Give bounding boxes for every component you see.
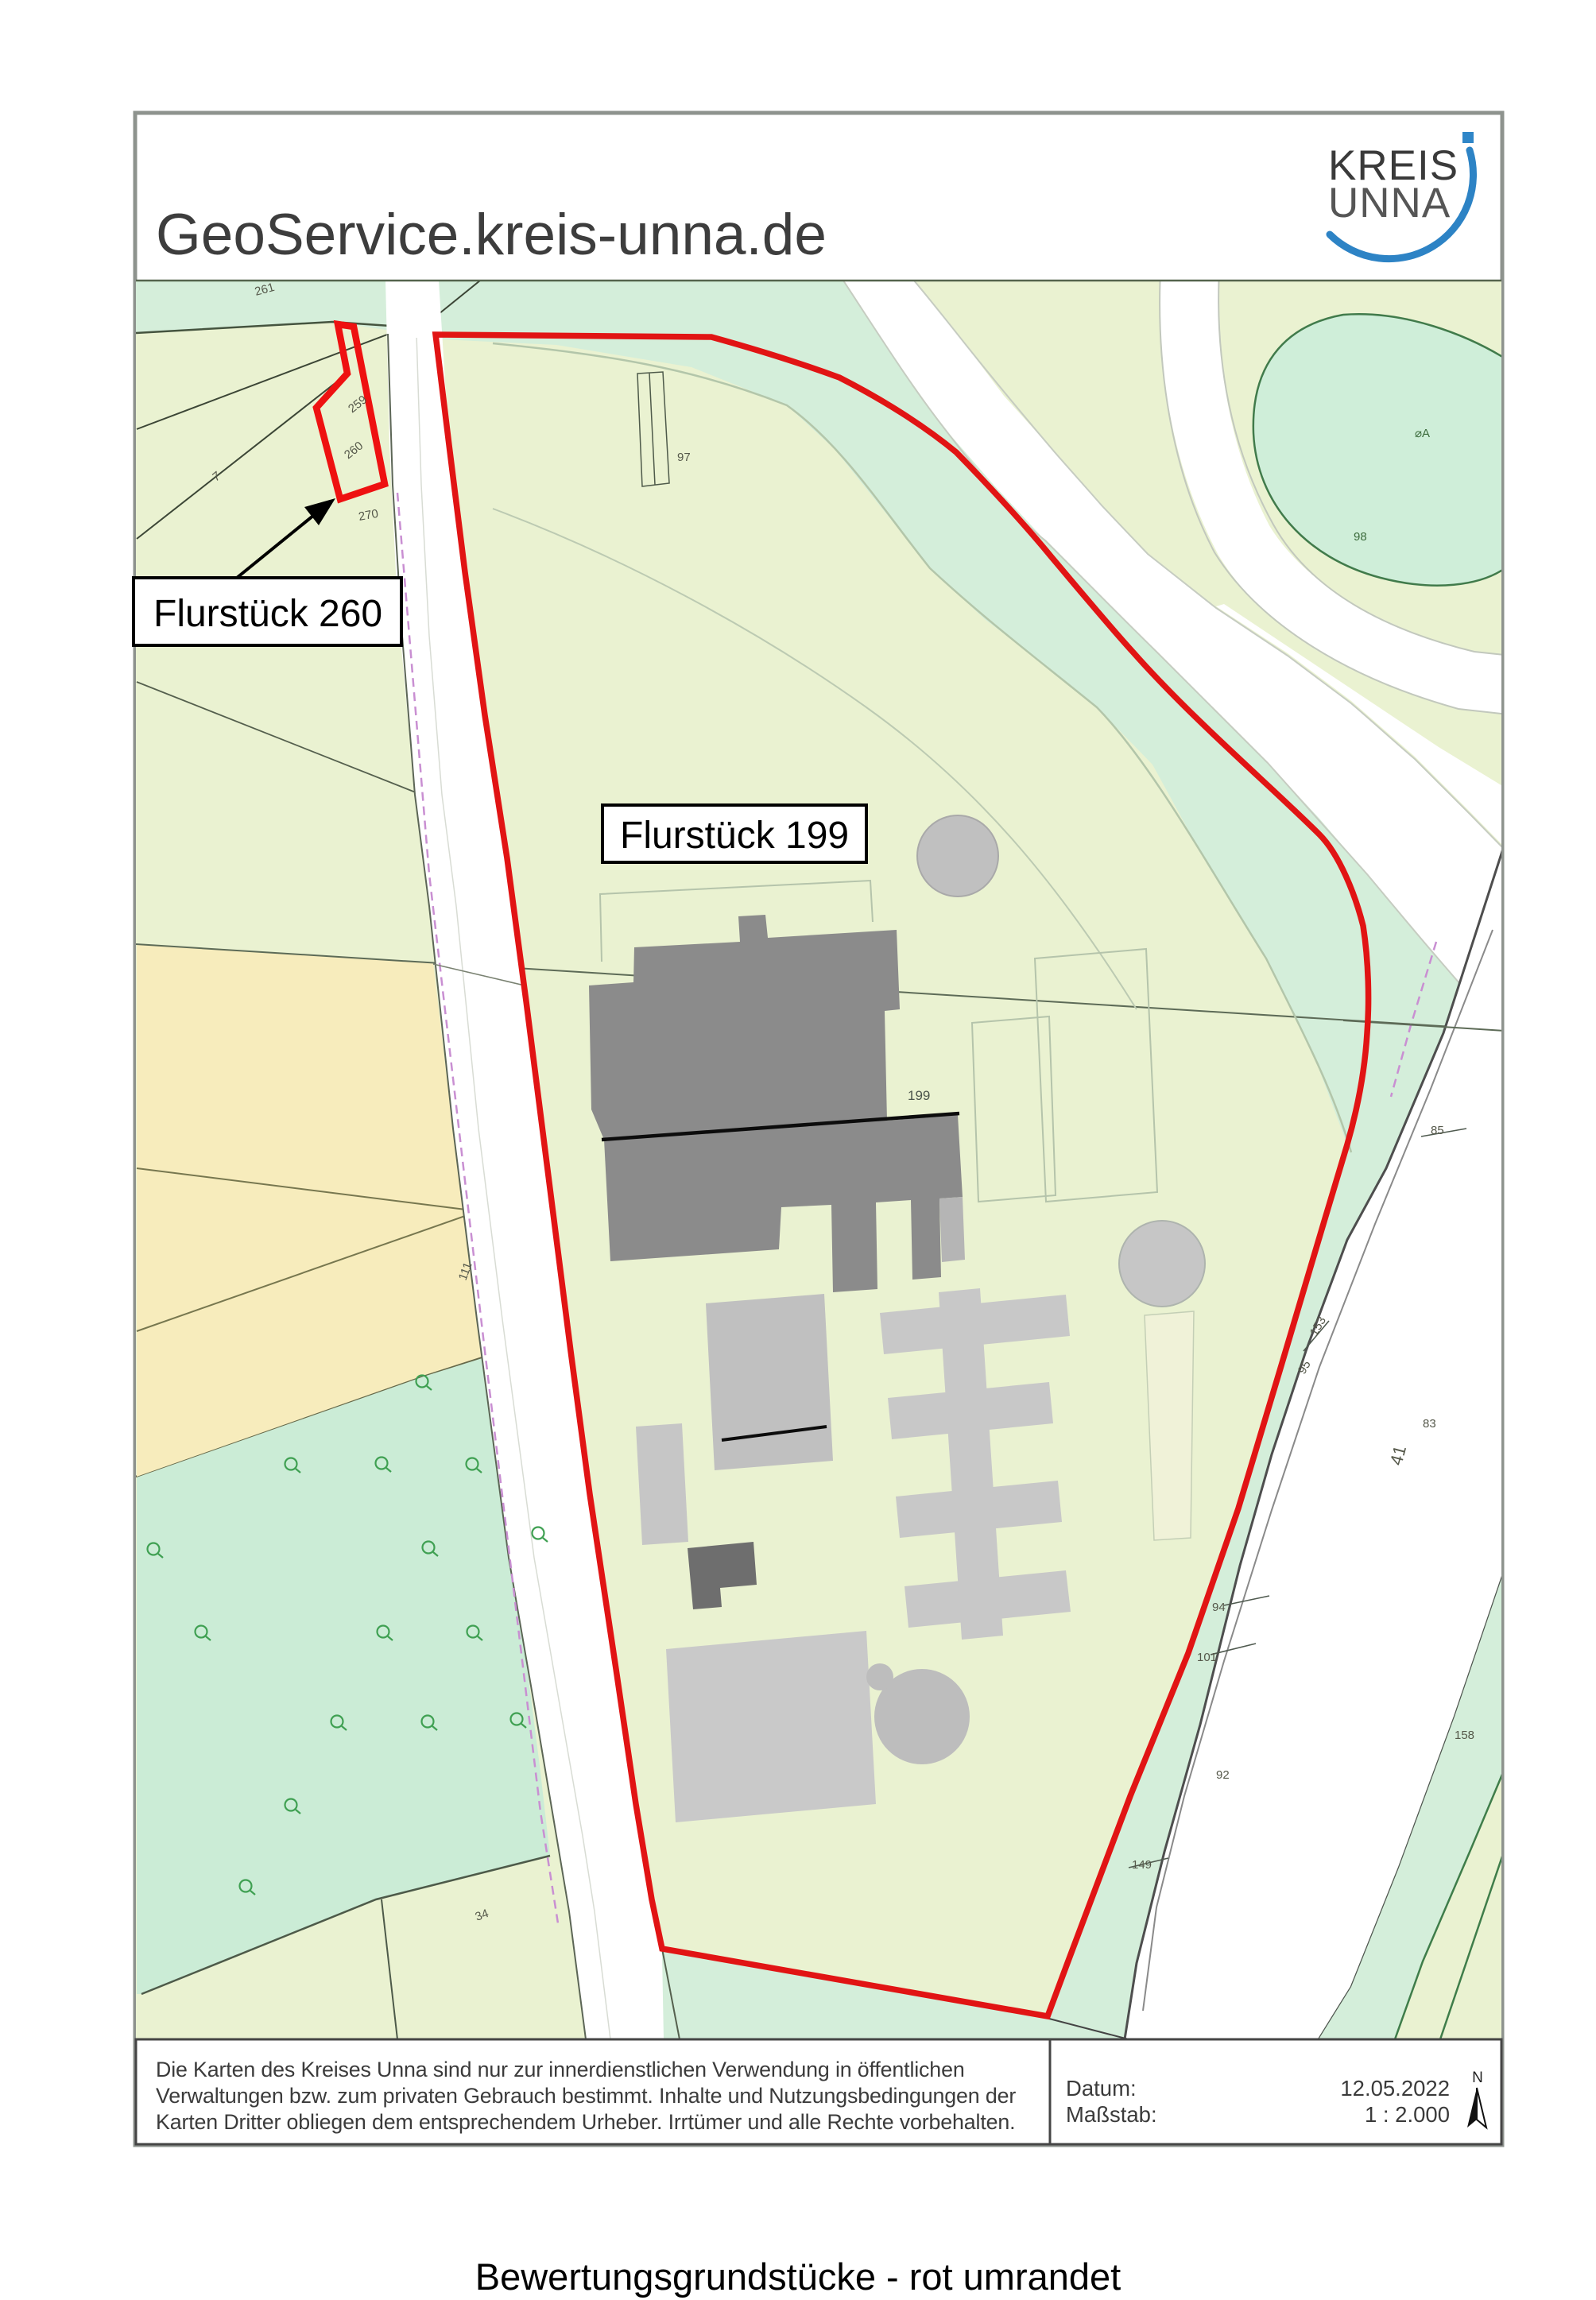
svg-text:Die Karten des Kreises Unna si: Die Karten des Kreises Unna sind nur zur… [156, 2058, 965, 2081]
svg-text:UNNA: UNNA [1328, 180, 1451, 227]
svg-text:149: 149 [1132, 1858, 1152, 1872]
svg-text:Flurstück 199: Flurstück 199 [620, 815, 849, 857]
svg-text:GeoService.kreis-unna.de: GeoService.kreis-unna.de [156, 203, 827, 267]
svg-text:83: 83 [1423, 1417, 1436, 1431]
svg-text:Bewertungsgrundstücke - rot u: Bewertungsgrundstücke - rot umrandet [475, 2255, 1121, 2298]
svg-text:199: 199 [908, 1088, 930, 1103]
svg-text:12.05.2022: 12.05.2022 [1340, 2076, 1450, 2101]
svg-text:101: 101 [1197, 1651, 1217, 1664]
svg-text:Flurstück 260: Flurstück 260 [153, 593, 382, 635]
svg-text:94: 94 [1212, 1601, 1226, 1614]
svg-text:Datum:: Datum: [1066, 2076, 1137, 2101]
svg-text:98: 98 [1354, 530, 1367, 544]
svg-text:158: 158 [1455, 1729, 1474, 1742]
svg-text:85: 85 [1431, 1124, 1444, 1137]
svg-text:1 : 2.000: 1 : 2.000 [1365, 2102, 1450, 2127]
svg-text:92: 92 [1216, 1768, 1230, 1782]
svg-text:Verwaltungen bzw. zum privaten: Verwaltungen bzw. zum privaten Gebrauch … [156, 2084, 1016, 2108]
svg-text:Maßstab:: Maßstab: [1066, 2102, 1157, 2127]
svg-text:⌀A: ⌀A [1415, 427, 1430, 440]
svg-text:Karten Dritter obliegen dem en: Karten Dritter obliegen dem entsprechend… [156, 2110, 1015, 2134]
svg-text:N: N [1472, 2070, 1483, 2086]
svg-text:97: 97 [677, 451, 691, 464]
